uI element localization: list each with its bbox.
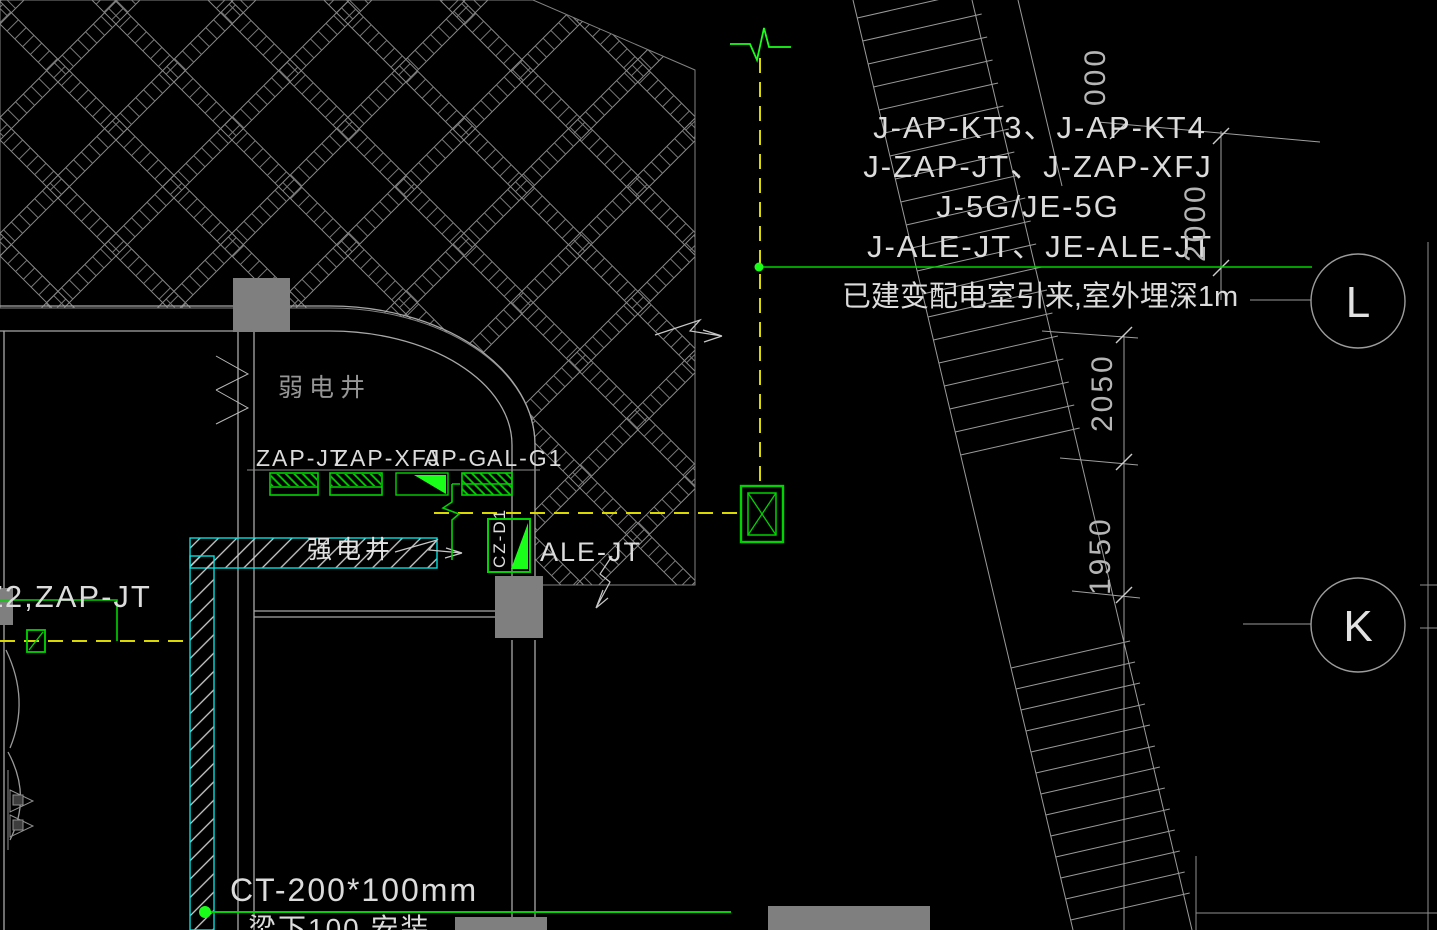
weak-shaft-label: 弱电井 (278, 374, 371, 402)
cable-node-dot (755, 263, 764, 272)
cz-d1-label: CZ-D1 (490, 508, 509, 568)
left-circuit-label: Z2,ZAP-JT (0, 579, 152, 614)
grid-bubble-k-label: K (1343, 602, 1372, 651)
dimension-2000: 2000 (1179, 183, 1212, 262)
panel-labels: ZAP-JT ZAP-XFJ AP-G AL-G1 (256, 445, 563, 471)
cable-tray-label: CT-200*100mm (230, 872, 478, 908)
column (233, 278, 290, 332)
feeder-note-line3: J-5G/JE-5G (936, 189, 1120, 224)
panel-label-ap-g: AP-G (424, 445, 488, 471)
grid-bubble-l-label: L (1346, 278, 1370, 327)
feeder-note-line1: J-AP-KT3、J-AP-KT4 (873, 110, 1207, 145)
dimension-2050: 2050 (1086, 353, 1119, 432)
dimension-top-partial: 000 (1079, 47, 1112, 106)
grid-bubble-k: K (1311, 578, 1405, 672)
strong-shaft-label: 强电井 (307, 536, 394, 564)
dimension-1950: 1950 (1084, 516, 1117, 595)
panel-al-g1 (462, 473, 512, 495)
source-note: 已建变配电室引来,室外埋深1m (842, 280, 1238, 313)
feeder-note-line4: J-ALE-JT、JE-ALE-JT (867, 229, 1213, 264)
ale-jt-label: ALE-JT (540, 537, 642, 567)
grid-bubble-l: L (1311, 254, 1405, 348)
panel-label-zap-jt: ZAP-JT (256, 445, 346, 471)
column (495, 576, 543, 638)
cable-tray-sub-label: 梁下100 安装 (248, 913, 431, 930)
column (768, 906, 930, 930)
cad-electrical-plan: J-AP-KT3、J-AP-KT4 J-ZAP-JT、J-ZAP-XFJ J-5… (0, 0, 1437, 930)
tray-node-dot (199, 906, 211, 918)
column (455, 917, 547, 930)
feeder-note-line2: J-ZAP-JT、J-ZAP-XFJ (863, 149, 1212, 184)
panel-label-al-g1: AL-G1 (487, 445, 563, 471)
